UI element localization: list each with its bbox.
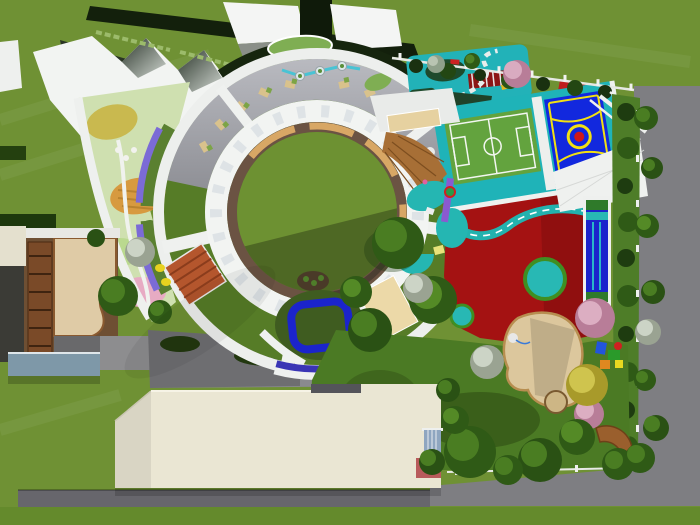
building-shadow [115, 488, 441, 496]
tree-highlight [101, 279, 125, 303]
tree-highlight [627, 445, 645, 463]
pool-teal-strip [586, 212, 608, 220]
gray-tree-highlight [637, 320, 653, 336]
pool-green-strip [586, 200, 608, 210]
canopy-shadow [8, 376, 100, 384]
tree-highlight [636, 371, 648, 383]
blue-canopy [8, 352, 100, 376]
tree-highlight [447, 429, 479, 461]
wall-top [20, 228, 120, 238]
building-roof [115, 384, 441, 488]
tree-highlight [521, 441, 547, 467]
wooden-shelving [28, 242, 52, 356]
lap-pool [583, 196, 611, 306]
tree-highlight [637, 216, 651, 230]
tree-highlight [150, 302, 164, 316]
teal-play-circle [525, 259, 565, 299]
tree-highlight [466, 55, 475, 64]
gray-tree-highlight [405, 275, 423, 293]
tree-highlight [375, 220, 407, 252]
gray-tree-highlight [127, 239, 145, 257]
tree-highlight [561, 421, 583, 443]
cherry-tree-highlight [504, 61, 522, 79]
cream-classroom-building [115, 384, 443, 496]
cherry-tree-highlight [578, 301, 602, 325]
water-sprayer [508, 333, 518, 343]
tree-highlight [643, 282, 657, 296]
gray-tree-highlight [473, 347, 493, 367]
tree-highlight [636, 108, 650, 122]
tree-highlight [643, 159, 655, 171]
target-toy [445, 187, 455, 197]
toy-car [450, 59, 459, 65]
tree-highlight [351, 311, 377, 337]
tree-canopy [87, 229, 105, 247]
tree-highlight [438, 380, 452, 394]
sand-circle [545, 391, 567, 413]
yellow-duck [155, 264, 165, 272]
tree-highlight [420, 450, 436, 466]
yellow-tree-highlight [569, 367, 595, 393]
yellow-duck [161, 278, 171, 286]
hedge-strip [0, 146, 26, 160]
grass-verge [0, 507, 700, 525]
aerial-render-canvas [0, 0, 700, 525]
tree-highlight [443, 408, 459, 424]
gray-tree-highlight [428, 56, 438, 66]
tree-highlight [644, 416, 660, 432]
play-item [423, 180, 428, 185]
tree-highlight [605, 451, 623, 469]
corner-wall [0, 226, 26, 266]
teal-play-pad [436, 208, 468, 248]
roof-inset [311, 384, 361, 393]
tree-highlight [343, 279, 361, 297]
tree-highlight [495, 457, 513, 475]
